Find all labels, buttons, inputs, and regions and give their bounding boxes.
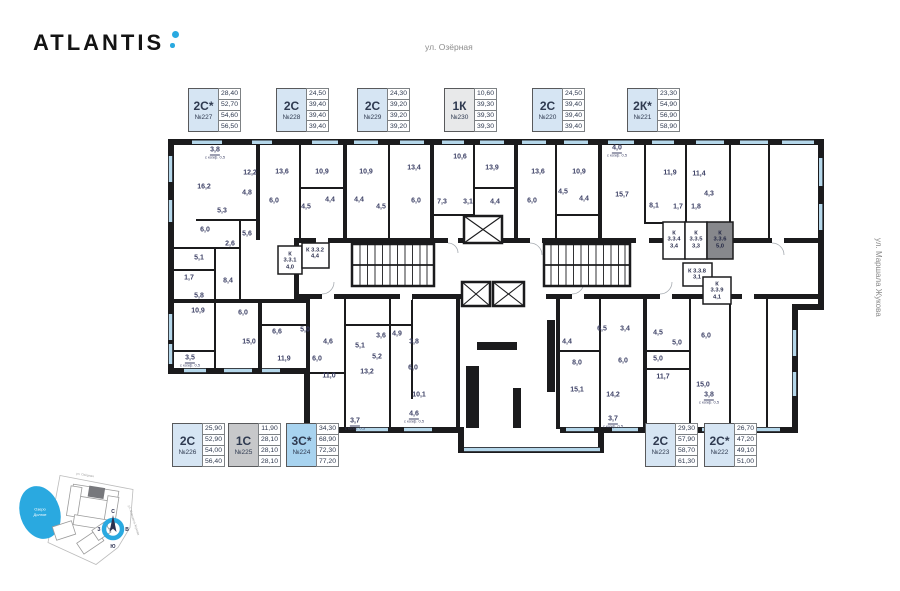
apartment-type-cell: 1К №230 xyxy=(444,88,475,132)
apartment-type-cell: 2С №220 xyxy=(532,88,563,132)
area-value: 77,20 xyxy=(316,455,339,467)
area-value: 39,30 xyxy=(474,120,497,132)
apartment-cards-top-row: 2С* №227 28,4052,7054,6056,50 2С №228 24… xyxy=(0,88,900,132)
apartment-type-cell: 1С №225 xyxy=(228,423,259,467)
apartment-number: №227 xyxy=(195,114,213,121)
apartment-cards-bottom-row: 2С №226 25,9052,9054,0056,40 1С №225 11,… xyxy=(0,423,900,467)
apartment-type-cell: 2С №229 xyxy=(357,88,388,132)
apartment-areas: 25,9052,9054,0056,40 xyxy=(202,423,225,467)
lake-label-line2: Долгое xyxy=(33,512,47,517)
apartment-type: 2С* xyxy=(193,100,213,112)
apartment-type-cell: 2С* №222 xyxy=(704,423,735,467)
lake-label-line1: Озеро xyxy=(34,507,46,512)
apartment-card-№223[interactable]: 2С №223 29,3057,9058,7061,30 xyxy=(645,423,698,467)
apartment-type-cell: 2С* №227 xyxy=(188,88,219,132)
area-value: 39,20 xyxy=(387,120,410,132)
apartment-number: №221 xyxy=(634,114,652,121)
apartment-number: №224 xyxy=(293,449,311,456)
apartment-type: 3С* xyxy=(291,435,311,447)
apartment-areas: 24,5039,4039,4039,40 xyxy=(306,88,329,132)
area-value: 56,40 xyxy=(202,455,225,467)
compass: С Ю З В xyxy=(96,508,130,550)
apartment-type-cell: 2С №223 xyxy=(645,423,676,467)
apartment-type: 1С xyxy=(236,435,251,447)
apartment-type: 2С xyxy=(180,435,195,447)
apartment-number: №228 xyxy=(283,114,301,121)
apartment-card-№224[interactable]: 3С* №224 34,3068,9072,3077,20 xyxy=(286,423,339,467)
area-value: 58,90 xyxy=(657,120,680,132)
apartment-card-№225[interactable]: 1С №225 11,9028,1028,1028,10 xyxy=(228,423,281,467)
area-value: 28,10 xyxy=(258,455,281,467)
area-value: 56,50 xyxy=(218,120,241,132)
apartment-card-№230[interactable]: 1К №230 10,6039,3039,3039,30 xyxy=(444,88,497,132)
apartment-card-№229[interactable]: 2С №229 24,3039,2039,2039,20 xyxy=(357,88,410,132)
apartment-type: 2С xyxy=(653,435,668,447)
apartment-type: 2С xyxy=(284,100,299,112)
apartment-areas: 29,3057,9058,7061,30 xyxy=(675,423,698,467)
apartment-card-№227[interactable]: 2С* №227 28,4052,7054,6056,50 xyxy=(188,88,241,132)
area-value: 51,00 xyxy=(734,455,757,467)
compass-needle-icon xyxy=(110,515,117,532)
apartment-type: 2С xyxy=(540,100,555,112)
apartment-areas: 24,3039,2039,2039,20 xyxy=(387,88,410,132)
minimap-street-top: ул. Озёрная xyxy=(76,472,95,479)
area-value: 39,40 xyxy=(306,120,329,132)
compass-west: З xyxy=(97,527,100,533)
apartment-card-№228[interactable]: 2С №228 24,5039,4039,4039,40 xyxy=(276,88,329,132)
apartment-areas: 23,3054,9056,9058,90 xyxy=(657,88,680,132)
apartment-card-№220[interactable]: 2С №220 24,5039,4039,4039,40 xyxy=(532,88,585,132)
compass-east: В xyxy=(125,527,129,533)
apartment-type-cell: 2С №228 xyxy=(276,88,307,132)
apartment-areas: 34,3068,9072,3077,20 xyxy=(316,423,339,467)
apartment-type: 1К xyxy=(453,100,467,112)
area-value: 61,30 xyxy=(675,455,698,467)
apartment-number: №222 xyxy=(711,449,729,456)
apartment-number: №225 xyxy=(235,449,253,456)
apartment-type: 2С xyxy=(365,100,380,112)
compass-north: С xyxy=(111,509,115,515)
apartment-number: №226 xyxy=(179,449,197,456)
apartment-number: №220 xyxy=(539,114,557,121)
apartment-areas: 26,7047,2049,1051,00 xyxy=(734,423,757,467)
apartment-areas: 28,4052,7054,6056,50 xyxy=(218,88,241,132)
apartment-type-cell: 2С №226 xyxy=(172,423,203,467)
apartment-areas: 10,6039,3039,3039,30 xyxy=(474,88,497,132)
apartment-type: 2С* xyxy=(709,435,729,447)
apartment-areas: 24,5039,4039,4039,40 xyxy=(562,88,585,132)
floorplan-page: ATLANTIS ул. Озёрная ул. Маршала Жукова xyxy=(0,0,900,591)
area-value: 39,40 xyxy=(562,120,585,132)
apartment-card-№222[interactable]: 2С* №222 26,7047,2049,1051,00 xyxy=(704,423,757,467)
compass-south: Ю xyxy=(110,544,115,550)
apartment-number: №230 xyxy=(451,114,469,121)
apartment-number: №223 xyxy=(652,449,670,456)
apartment-areas: 11,9028,1028,1028,10 xyxy=(258,423,281,467)
apartment-number: №229 xyxy=(364,114,382,121)
apartment-type: 2К* xyxy=(633,100,652,112)
apartment-type-cell: 2К* №221 xyxy=(627,88,658,132)
apartment-card-№221[interactable]: 2К* №221 23,3054,9056,9058,90 xyxy=(627,88,680,132)
apartment-card-№226[interactable]: 2С №226 25,9052,9054,0056,40 xyxy=(172,423,225,467)
apartment-type-cell: 3С* №224 xyxy=(286,423,317,467)
